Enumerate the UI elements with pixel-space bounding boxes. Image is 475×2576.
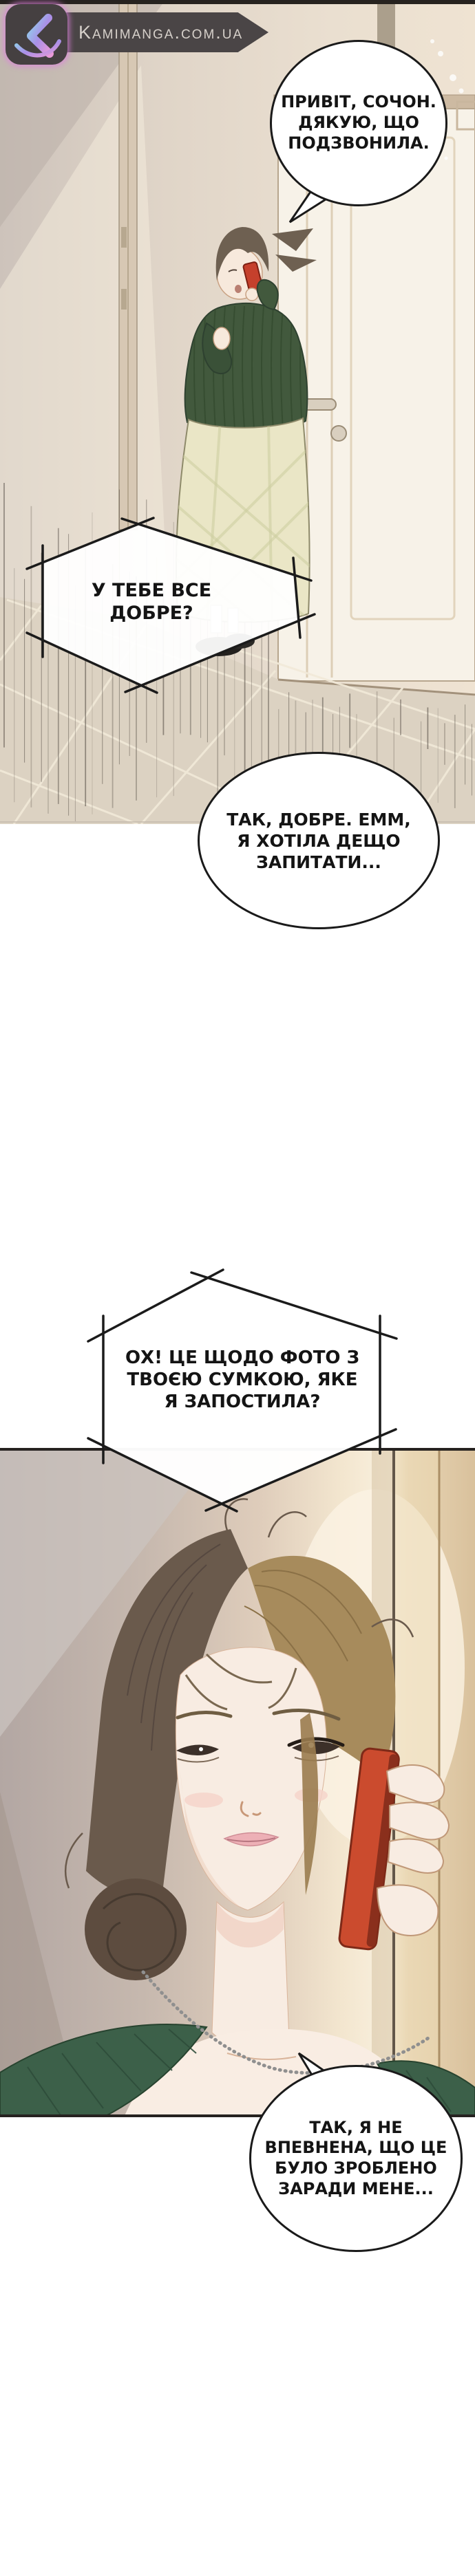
comic-page: ПРИВІТ, СОЧОН. ДЯКУЮ, ЩО ПОДЗВОНИЛА. У Т…: [0, 0, 475, 2576]
door-knob: [331, 426, 346, 441]
blush: [184, 1793, 223, 1808]
bubble-line: ТАК, Я НЕ: [309, 2118, 402, 2139]
site-logo-badge: [6, 4, 67, 65]
watermark-text: Kamimanga.com.ua: [65, 22, 243, 43]
bubble-line: У ТЕБЕ ВСЕ: [92, 579, 211, 602]
bubble-line: ВПЕВНЕНА, ЩО ЦЕ: [265, 2138, 447, 2158]
bubble-line: ПРИВІТ, СОЧОН.: [281, 92, 436, 113]
speech-bubble-3: ТАК, ДОБРЕ. ЕММ, Я ХОТІЛА ДЕЩО ЗАПИТАТИ.…: [198, 752, 440, 929]
bubble-line: ЗАРАДИ МЕНЕ...: [278, 2179, 434, 2200]
page-top-border: [0, 1, 475, 4]
bubble-line: ДЯКУЮ, ЩО: [298, 113, 419, 133]
panel-closeup: [0, 1448, 475, 2120]
phone-bubble-4-text: ОХ! ЦЕ ЩОДО ФОТО З ТВОЄЮ СУМКОЮ, ЯКЕ Я З…: [84, 1347, 401, 1414]
bubble-line: ТВОЄЮ СУМКОЮ, ЯКЕ: [127, 1369, 357, 1391]
bubble-line: ОХ! ЦЕ ЩОДО ФОТО З: [125, 1347, 359, 1369]
watermark-banner: Kamimanga.com.ua: [65, 12, 268, 52]
speech-bubble-1: ПРИВІТ, СОЧОН. ДЯКУЮ, ЩО ПОДЗВОНИЛА.: [270, 40, 447, 206]
closeup-illustration: [0, 1448, 475, 2117]
hand-at-chest: [213, 327, 230, 349]
speech-bubble-5: ТАК, Я НЕ ВПЕВНЕНА, ЩО ЦЕ БУЛО ЗРОБЛЕНО …: [249, 2065, 463, 2252]
site-logo-icon: [6, 4, 67, 65]
bubble-line: ПОДЗВОНИЛА.: [288, 133, 429, 154]
bubble-line: ЗАПИТАТИ...: [256, 852, 381, 873]
left-door-frame: [119, 0, 137, 530]
phone-bubble-2-text: У ТЕБЕ ВСЕ ДОБРЕ?: [52, 579, 251, 625]
bubble-line: ТАК, ДОБРЕ. ЕММ,: [226, 809, 411, 830]
hand-holding-phone: [246, 288, 258, 301]
bubble-line: Я ХОТІЛА ДЕЩО: [237, 830, 400, 852]
mouth: [235, 285, 242, 293]
bubble-line: ДОБРЕ?: [109, 602, 193, 625]
bubble-line: Я ЗАПОСТИЛА?: [165, 1391, 321, 1413]
bubble-line: БУЛО ЗРОБЛЕНО: [275, 2158, 437, 2179]
